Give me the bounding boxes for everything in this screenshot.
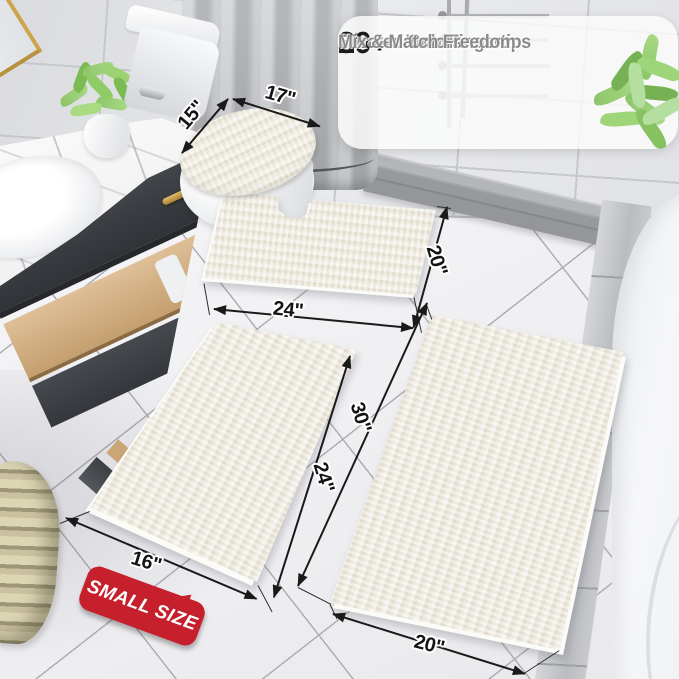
corner-plant: [592, 42, 679, 154]
rug-pile: [325, 305, 639, 659]
plant-pot: [84, 114, 130, 158]
large-bath-rug: [325, 305, 639, 659]
feature-row: ✓ Mix & Match Freedom: [338, 23, 390, 63]
feature-label: Mix & Match Freedom: [338, 32, 515, 54]
contour-u-shape-mat: [200, 183, 444, 301]
bathroom-product-photo: 15" 17" 24" 20" 16" 24" 30" 20" SMALL SI…: [0, 0, 679, 679]
